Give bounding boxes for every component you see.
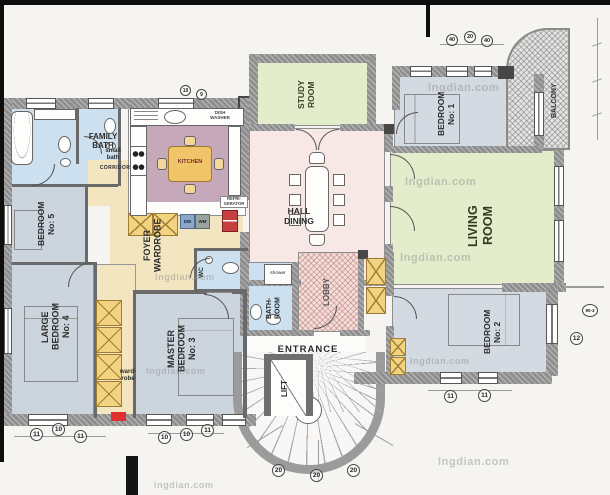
label-bedroom-1: BEDROOM No: 1 xyxy=(436,86,466,142)
label-bedroom-4: LARGE BEDROOM No: 4 xyxy=(40,280,74,374)
watermark: lngdian.com xyxy=(154,480,214,490)
label-bedroom-5: BEDROOM No: 5 xyxy=(36,192,62,256)
label-kitchen: KITCHEN xyxy=(170,159,210,165)
label-lobby: LOBBY xyxy=(322,266,338,318)
window xyxy=(4,205,12,245)
dining-chair xyxy=(309,234,325,246)
wardrobe-unit xyxy=(366,258,386,285)
wall xyxy=(292,262,298,332)
window xyxy=(88,98,114,109)
vanity-counter xyxy=(34,109,76,120)
label-bedroom-2: BEDROOM No: 2 xyxy=(482,302,512,362)
wall xyxy=(392,66,400,110)
watermark: lngdian.com xyxy=(438,456,509,468)
window xyxy=(474,66,492,77)
dw-box: DW xyxy=(180,214,195,229)
window xyxy=(554,166,564,206)
label-entrance: ENTRANCE xyxy=(266,344,350,355)
kitchen-stool xyxy=(214,158,224,170)
highlight-mark xyxy=(111,412,126,421)
wardrobe-unit xyxy=(96,381,122,407)
window xyxy=(478,372,498,384)
dimension-marker: 20 xyxy=(272,464,285,477)
refrigerator-label: REFRI- GERATOR xyxy=(220,196,248,208)
window xyxy=(410,66,432,77)
dining-chair xyxy=(333,194,345,206)
dimension-marker: 90-3 xyxy=(582,304,598,317)
wall-thin xyxy=(243,290,247,418)
wardrobe-unit xyxy=(96,327,122,353)
label-living: LIVING ROOM xyxy=(466,188,506,264)
wardrobe-unit xyxy=(390,338,406,356)
label-study: STUDY ROOM xyxy=(296,70,324,120)
watermark: lngdian.com xyxy=(400,252,471,264)
image-border-mark xyxy=(126,456,138,495)
label-hall-dining: HALL DINING xyxy=(274,206,324,226)
wc-toilet xyxy=(222,262,239,274)
wall-corner xyxy=(384,124,394,134)
dimension-marker: 20 xyxy=(310,469,323,482)
dimension-marker: 11 xyxy=(444,390,457,403)
image-border-left xyxy=(0,0,4,462)
label-balcony: BALCONY xyxy=(551,72,567,130)
label-bathroom: BATH- ROOM xyxy=(266,288,288,328)
wall-thin xyxy=(196,248,248,251)
window xyxy=(534,92,544,136)
watermark: lngdian.com xyxy=(410,356,470,366)
dimension-marker: 10 xyxy=(180,428,193,441)
dim-line xyxy=(428,390,512,391)
sink xyxy=(60,158,71,167)
dimension-marker: 9 xyxy=(196,89,207,100)
wall xyxy=(249,54,258,128)
window xyxy=(440,372,462,384)
watermark: lngdian.com xyxy=(146,366,206,376)
dimension-marker: 10 xyxy=(52,423,65,436)
wall xyxy=(385,186,393,202)
image-border-top xyxy=(0,0,610,5)
label-corridor: CORRIDOR xyxy=(96,166,134,172)
kitchen-counter-right xyxy=(228,126,241,196)
wardrobe-unit xyxy=(390,357,406,375)
dish-washer-label: DISH WASHER xyxy=(202,110,238,121)
window xyxy=(4,308,12,354)
image-border-mark xyxy=(426,0,430,37)
kitchen-sink xyxy=(164,110,186,124)
kitchen-stool xyxy=(157,158,167,170)
kitchen-stool xyxy=(184,136,196,146)
dimension-marker: 10 xyxy=(180,85,191,96)
bathtub xyxy=(11,111,33,165)
watermark: lngdian.com xyxy=(428,82,499,94)
wardrobe-unit xyxy=(366,287,386,314)
window xyxy=(546,304,558,344)
wall xyxy=(249,124,295,131)
dimension-marker: 20 xyxy=(347,464,360,477)
wall xyxy=(358,250,364,332)
window xyxy=(146,414,172,426)
dining-chair xyxy=(289,194,301,206)
label-small-bath: small bath xyxy=(98,148,128,162)
dining-chair xyxy=(333,174,345,186)
wall xyxy=(340,330,370,336)
label-lift: LIFT xyxy=(280,372,296,406)
dining-chair xyxy=(289,174,301,186)
wall xyxy=(240,330,314,336)
dining-chair xyxy=(309,152,325,164)
dimension-marker: 20 xyxy=(464,31,476,43)
watermark: lngdian.com xyxy=(405,176,476,188)
staircase-straight-flight xyxy=(318,356,382,412)
wall xyxy=(367,54,376,128)
dimension-marker: 11 xyxy=(74,430,87,443)
wall xyxy=(249,54,376,63)
drainer-lines xyxy=(134,111,158,123)
window xyxy=(554,220,564,262)
wall-thin xyxy=(85,186,88,264)
toilet xyxy=(250,304,262,320)
dimension-marker: 11 xyxy=(30,428,43,441)
dim-line xyxy=(14,436,106,437)
floor-plan: DISH WASHER REFRI- GERATOR DW WM F xyxy=(0,0,610,495)
label-wardrobe: ward- robe xyxy=(116,368,140,383)
label-master: MASTER BEDROOM No: 3 xyxy=(166,300,202,398)
window xyxy=(26,98,56,109)
dimension-marker: 11 xyxy=(478,389,491,402)
dimension-marker: 10 xyxy=(158,431,171,444)
terrace-line xyxy=(566,286,604,288)
dimension-marker: 40 xyxy=(446,34,458,46)
dimension-marker: 40 xyxy=(481,35,493,47)
watermark: lngdian.com xyxy=(155,272,215,282)
red-appliance xyxy=(222,210,238,232)
wall-thin xyxy=(12,184,118,187)
wall-corner xyxy=(498,66,514,79)
wall xyxy=(392,146,542,153)
kitchen-stool xyxy=(184,184,196,194)
wall-thin xyxy=(133,290,207,294)
wm-box: WM xyxy=(195,214,210,229)
wall-thin xyxy=(133,290,136,418)
dining-chair xyxy=(333,214,345,226)
wall xyxy=(386,252,394,296)
wardrobe-unit xyxy=(96,300,122,326)
dimension-marker: 12 xyxy=(570,332,583,345)
label-shower: shower xyxy=(264,271,292,277)
dimension-marker: 11 xyxy=(201,424,214,437)
toilet xyxy=(58,136,71,153)
window xyxy=(446,66,468,77)
